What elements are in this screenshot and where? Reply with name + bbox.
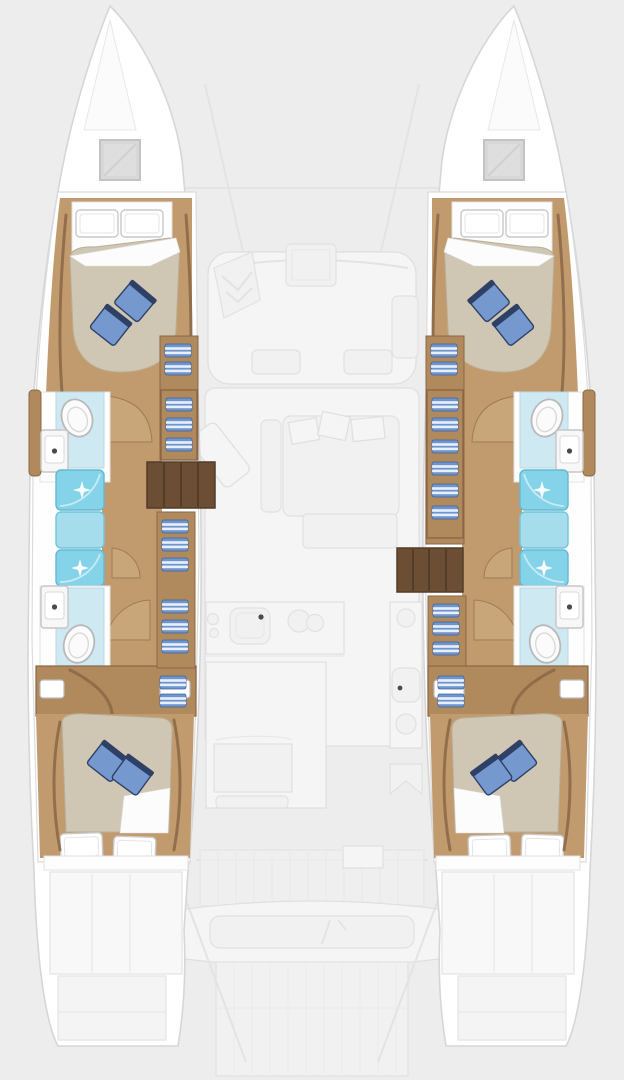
port-hull bbox=[28, 6, 215, 1046]
starboard-aft-bathroom bbox=[514, 586, 584, 672]
column-round-fixture bbox=[396, 714, 416, 734]
outboard-locker bbox=[29, 390, 41, 476]
starboard-shower-stack bbox=[520, 470, 568, 586]
starboard-linen-shelves bbox=[426, 336, 466, 666]
porthole bbox=[560, 680, 584, 698]
nav-seat bbox=[390, 764, 422, 794]
center-superstructure bbox=[188, 244, 422, 808]
prep-faucet bbox=[398, 686, 403, 691]
shower-cell bbox=[56, 512, 104, 548]
sofa-pillow bbox=[318, 411, 350, 440]
trampoline-edge-port bbox=[205, 84, 243, 252]
dinette-bench bbox=[216, 796, 288, 808]
starboard-forward-bathroom bbox=[514, 390, 595, 482]
companionway-steps-starboard bbox=[397, 548, 463, 592]
sofa-pillow bbox=[351, 416, 385, 441]
deck-plan-svg bbox=[0, 0, 624, 1080]
starboard-bow-hatch bbox=[484, 140, 524, 180]
trampoline-edge-starboard bbox=[381, 84, 419, 252]
sofa-front-section bbox=[303, 514, 397, 548]
aft-deck bbox=[163, 846, 461, 1076]
port-bow-hatch bbox=[100, 140, 140, 180]
aft-bulkhead bbox=[436, 856, 580, 870]
column-round-fixture bbox=[397, 609, 415, 627]
sofa-pillow bbox=[288, 418, 319, 445]
forward-bench-left bbox=[252, 350, 300, 374]
galley-faucet bbox=[258, 614, 263, 619]
port-shower-stack bbox=[56, 470, 104, 586]
aft-bench-cushion bbox=[210, 916, 414, 948]
galley-counter bbox=[206, 602, 344, 654]
shower-cell bbox=[520, 512, 568, 548]
galley-round-fixture bbox=[210, 629, 219, 638]
stove-burner-small bbox=[307, 615, 324, 632]
cockpit-locker bbox=[343, 846, 383, 868]
forward-bench-right bbox=[344, 350, 392, 374]
cockpit-sole bbox=[200, 850, 424, 906]
forward-cockpit bbox=[208, 244, 418, 384]
dinette-table bbox=[214, 744, 292, 792]
port-forward-bathroom bbox=[29, 390, 110, 482]
dinette bbox=[206, 662, 326, 808]
starboard-aft-cabin bbox=[430, 714, 588, 870]
starboard-swim-platform bbox=[442, 872, 574, 1040]
porthole bbox=[40, 680, 64, 698]
outboard-locker bbox=[583, 390, 595, 476]
boat-deck-plan bbox=[0, 0, 624, 1080]
aft-bulkhead bbox=[44, 856, 188, 870]
port-wardrobe bbox=[36, 666, 196, 716]
port-aft-cabin bbox=[36, 714, 194, 870]
sofa-armrest bbox=[261, 420, 281, 512]
port-swim-platform bbox=[50, 872, 182, 1040]
port-aft-bathroom bbox=[40, 586, 110, 672]
companionway-steps-port bbox=[147, 462, 215, 508]
starboard-wardrobe bbox=[428, 666, 588, 716]
galley-round-fixture bbox=[208, 614, 219, 625]
prep-sink bbox=[392, 668, 420, 702]
forward-chaise bbox=[392, 296, 418, 358]
starboard-hull bbox=[397, 6, 596, 1046]
